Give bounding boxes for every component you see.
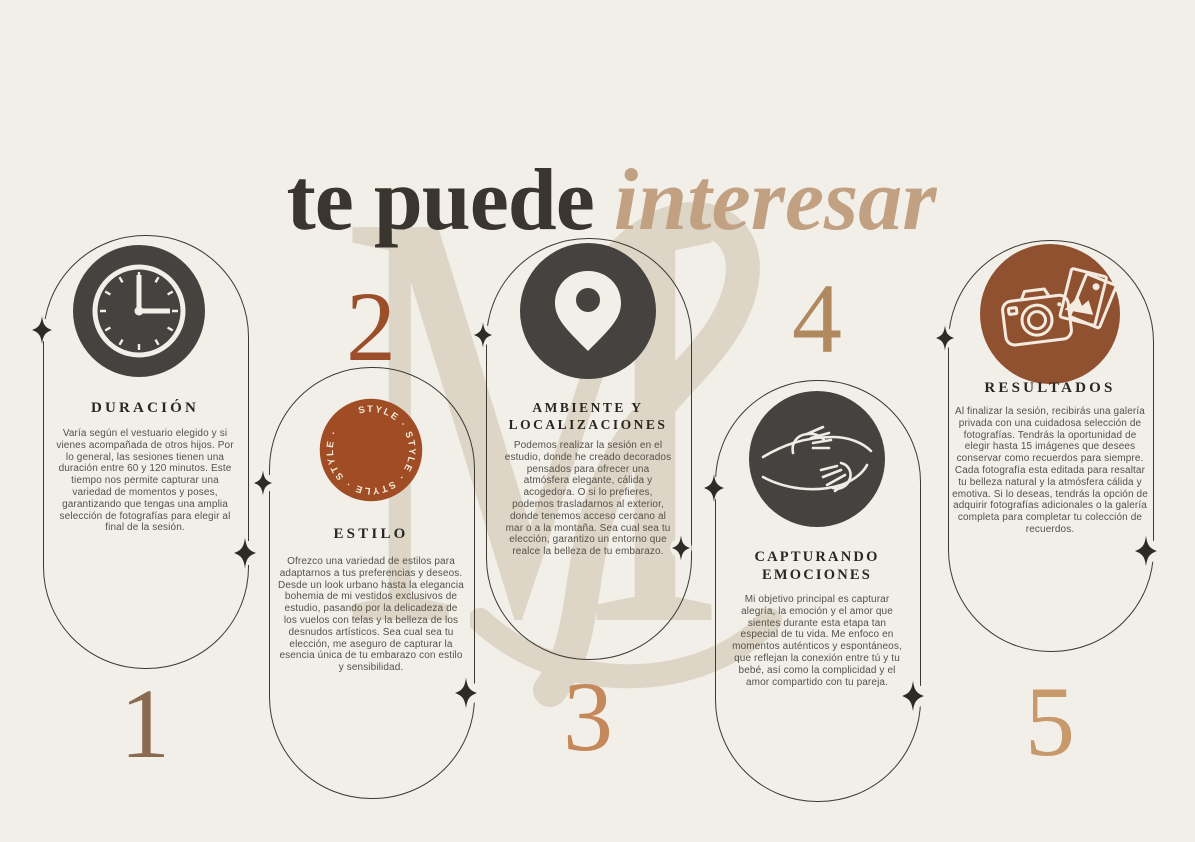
sparkle-icon: [902, 680, 924, 712]
section-number-2: 2: [269, 277, 473, 377]
location-pin-icon: [520, 243, 656, 379]
sparkle-icon: [32, 316, 52, 344]
section-body-estilo: Ofrezco una variedad de estilos para ada…: [277, 556, 465, 674]
section-number-1: 1: [43, 674, 247, 774]
sparkle-icon: [1135, 535, 1157, 567]
sparkle-icon: [234, 537, 256, 569]
infographic-canvas: M te puedeinteresar DURACIÓN Varía se: [0, 0, 1195, 842]
sparkle-icon: [672, 535, 690, 561]
sparkle-icon: [704, 474, 724, 502]
section-heading-duracion: DURACIÓN: [43, 400, 247, 417]
section-body-duracion: Varía según el vestuario elegido y si vi…: [56, 428, 234, 534]
sparkle-icon: [474, 322, 492, 348]
section-heading-ambiente: AMBIENTE Y LOCALIZACIONES: [486, 399, 690, 433]
page-title-main: te puede: [286, 152, 593, 249]
page-title: te puedeinteresar: [0, 157, 1195, 245]
section-body-emociones: Mi objetivo principal es capturar alegrí…: [732, 594, 902, 688]
page-title-accent: interesar: [614, 152, 937, 249]
sparkle-icon: [936, 325, 954, 351]
style-badge: STYLE · STYLE · STYLE · STYLE ·: [309, 388, 433, 512]
section-number-5: 5: [948, 672, 1152, 772]
section-number-3: 3: [486, 667, 690, 767]
section-heading-resultados: RESULTADOS: [948, 380, 1152, 397]
section-number-4: 4: [715, 269, 919, 369]
section-heading-estilo: ESTILO: [269, 526, 473, 543]
clock-icon: [73, 245, 205, 377]
camera-photos-icon: [980, 244, 1120, 384]
section-body-resultados: Al finalizar la sesión, recibirás una ga…: [952, 406, 1148, 536]
hugging-arms-icon: [749, 391, 885, 527]
sparkle-icon: [455, 677, 477, 709]
section-heading-emociones: CAPTURANDO EMOCIONES: [715, 548, 919, 584]
sparkle-icon: [254, 470, 272, 496]
section-body-ambiente: Podemos realizar la sesión en el estudio…: [503, 440, 673, 558]
